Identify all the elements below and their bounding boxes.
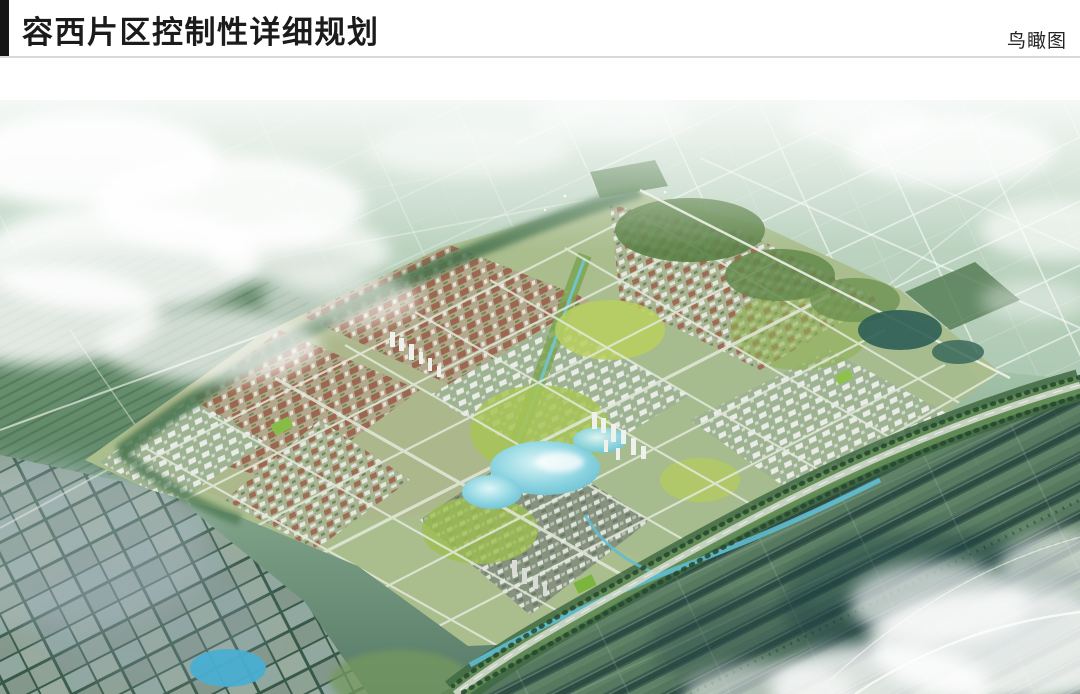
east-pond — [858, 310, 942, 350]
view-type-label: 鸟瞰图 — [1007, 26, 1067, 53]
planning-document-page: 容西片区控制性详细规划 鸟瞰图 — [0, 0, 1080, 694]
southwest-pond — [190, 649, 266, 687]
page-title: 容西片区控制性详细规划 — [22, 7, 380, 52]
aerial-render — [0, 100, 1080, 694]
page-header: 容西片区控制性详细规划 鸟瞰图 — [0, 0, 1080, 58]
header-accent-bar — [0, 0, 9, 56]
